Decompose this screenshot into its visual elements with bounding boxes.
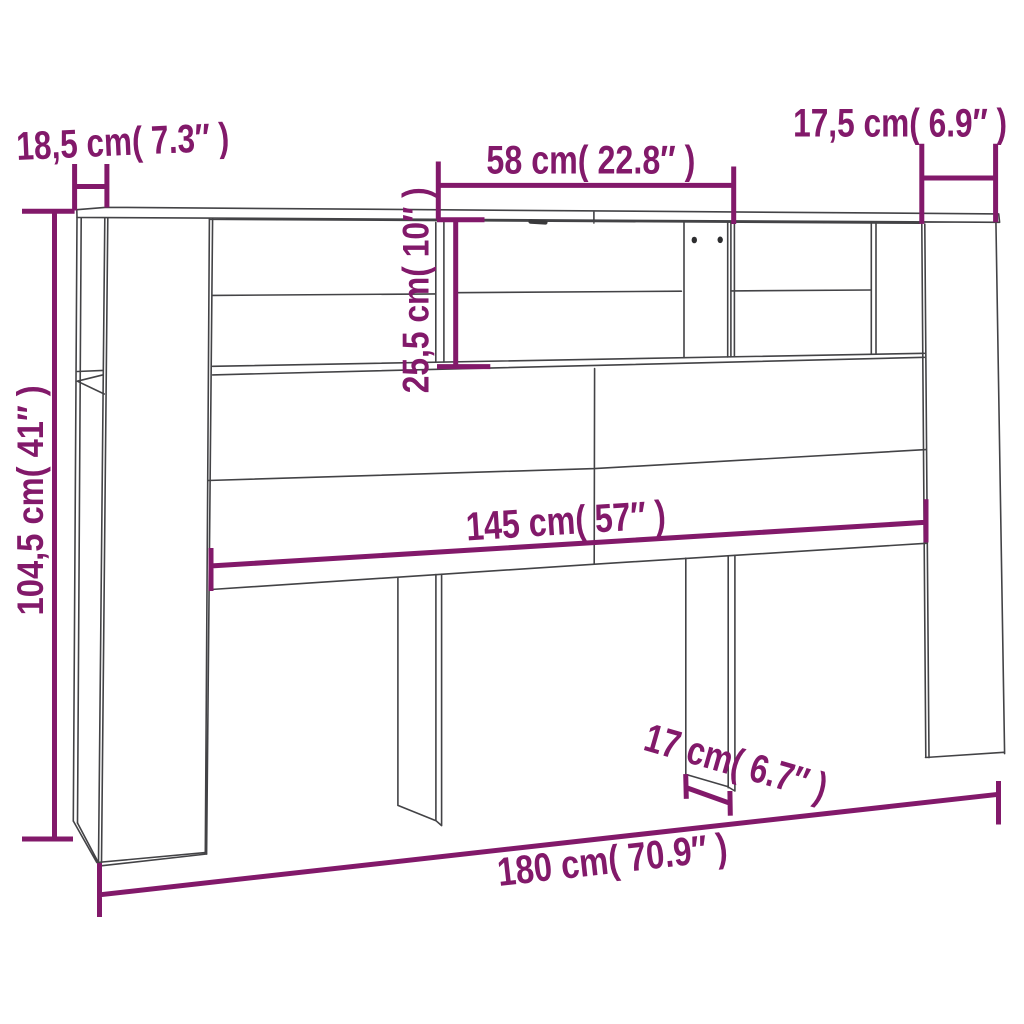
svg-text:104,5 cm( 41″ ): 104,5 cm( 41″ ) <box>10 385 51 615</box>
svg-text:58 cm( 22.8″ ): 58 cm( 22.8″ ) <box>486 138 695 182</box>
svg-text:17,5 cm( 6.9″ ): 17,5 cm( 6.9″ ) <box>793 102 1007 146</box>
svg-text:25,5 cm( 10″ ): 25,5 cm( 10″ ) <box>395 187 436 393</box>
